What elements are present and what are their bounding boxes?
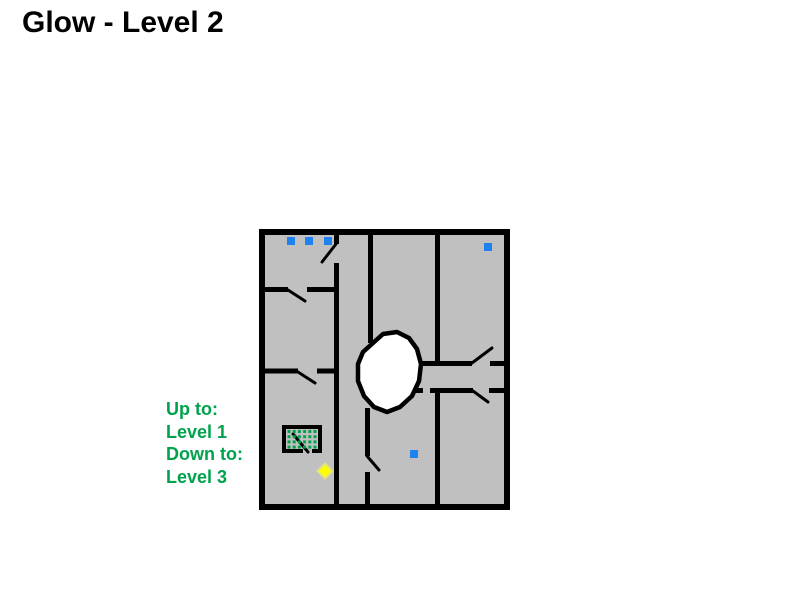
green-dot: [293, 435, 296, 438]
green-dot: [298, 446, 301, 449]
green-dot: [298, 435, 301, 438]
green-dot: [314, 430, 317, 433]
blue-item: [410, 450, 418, 458]
green-dot: [288, 435, 291, 438]
green-dot: [293, 446, 296, 449]
green-dot: [308, 446, 311, 449]
green-dot: [288, 440, 291, 443]
green-dot: [288, 430, 291, 433]
blue-item: [484, 243, 492, 251]
level-links: Up to: Level 1 Down to: Level 3: [166, 398, 243, 488]
green-dot: [298, 430, 301, 433]
green-dot: [314, 435, 317, 438]
green-dot: [303, 430, 306, 433]
page-title: Glow - Level 2: [22, 6, 224, 40]
green-dot: [314, 446, 317, 449]
green-dot: [293, 440, 296, 443]
blue-item: [305, 237, 313, 245]
label-down-to: Down to:: [166, 443, 243, 466]
green-dot: [308, 435, 311, 438]
level-map: [255, 224, 515, 516]
green-dot: [293, 430, 296, 433]
label-up-to: Up to:: [166, 398, 243, 421]
blue-item: [324, 237, 332, 245]
link-level-1: Level 1: [166, 421, 243, 444]
green-dot: [298, 440, 301, 443]
blue-item: [287, 237, 295, 245]
green-dot: [303, 440, 306, 443]
green-dot: [308, 440, 311, 443]
green-dot: [314, 440, 317, 443]
green-dot: [288, 446, 291, 449]
green-dot: [308, 430, 311, 433]
link-level-3: Level 3: [166, 466, 243, 489]
green-dot: [303, 446, 306, 449]
green-dot: [303, 435, 306, 438]
